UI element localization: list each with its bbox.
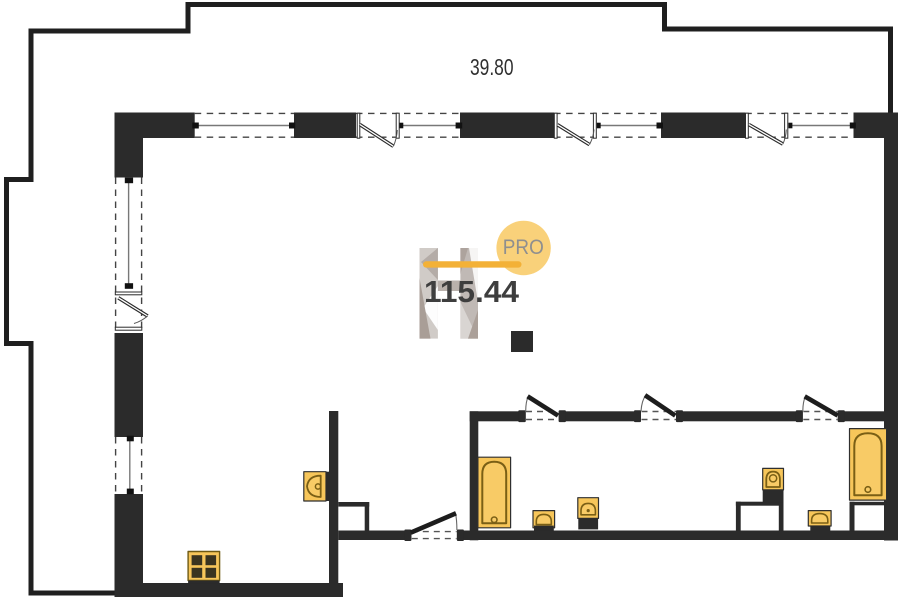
svg-text:39.80: 39.80 [470, 54, 514, 80]
svg-text:115.44: 115.44 [424, 274, 520, 309]
svg-text:PRO: PRO [503, 236, 544, 259]
